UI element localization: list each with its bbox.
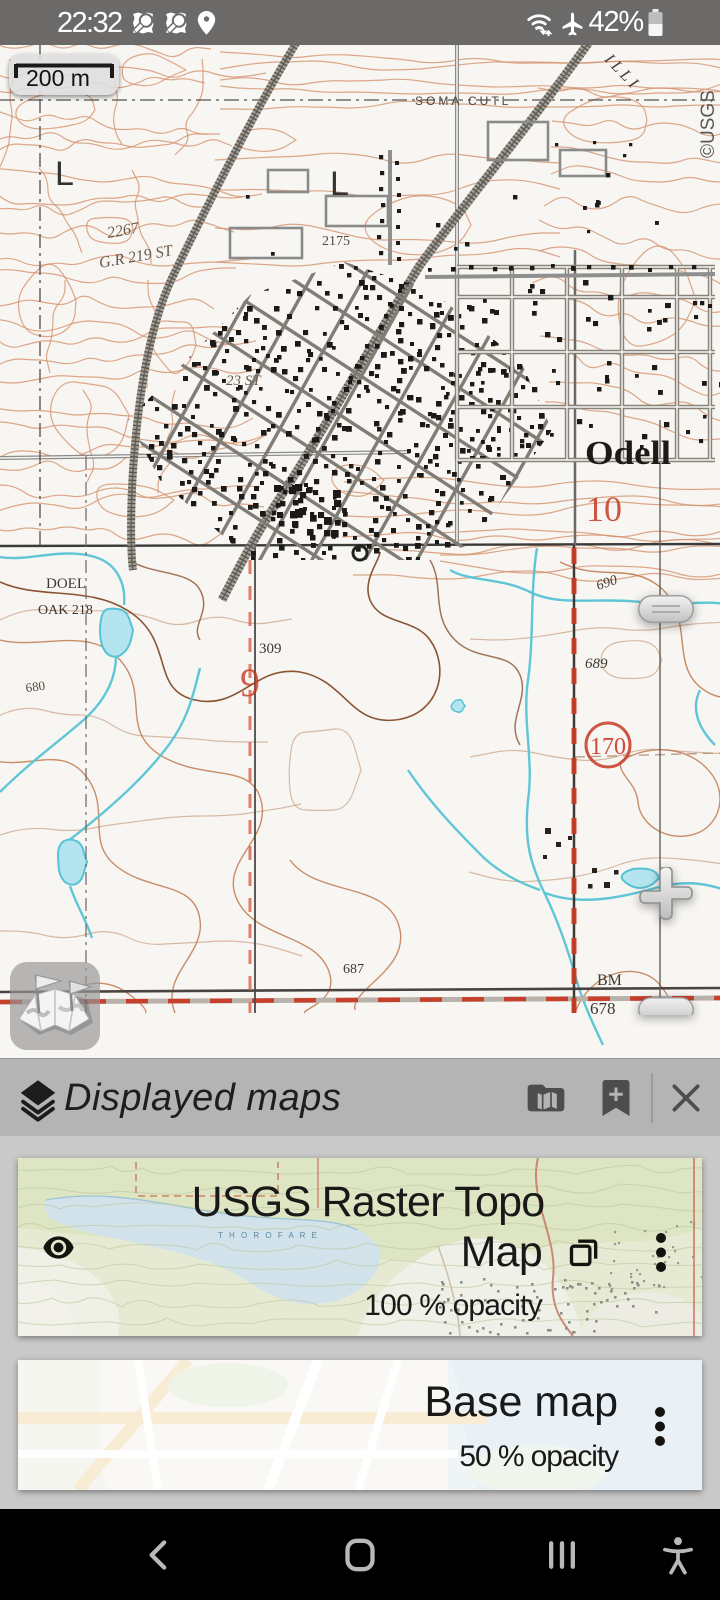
- svg-text:170: 170: [590, 734, 626, 760]
- svg-text:OAK 218: OAK 218: [38, 603, 93, 618]
- svg-text:678: 678: [590, 999, 616, 1018]
- svg-text:689: 689: [585, 656, 608, 672]
- svg-text:9: 9: [240, 660, 260, 705]
- svg-text:BM: BM: [597, 972, 622, 989]
- svg-text:SOMA CUTL: SOMA CUTL: [415, 94, 511, 108]
- svg-text:Odell: Odell: [585, 435, 671, 472]
- svg-text:23 ST: 23 ST: [226, 373, 262, 389]
- svg-text:2175: 2175: [322, 234, 350, 249]
- svg-text:DOEL: DOEL: [46, 576, 86, 592]
- svg-text:L: L: [55, 155, 74, 193]
- svg-text:10: 10: [586, 489, 622, 529]
- svg-text:687: 687: [343, 962, 364, 977]
- svg-text:680: 680: [25, 678, 46, 696]
- svg-text:309: 309: [259, 641, 282, 657]
- svg-text:L: L: [330, 165, 349, 203]
- svg-text:200 m: 200 m: [26, 65, 90, 91]
